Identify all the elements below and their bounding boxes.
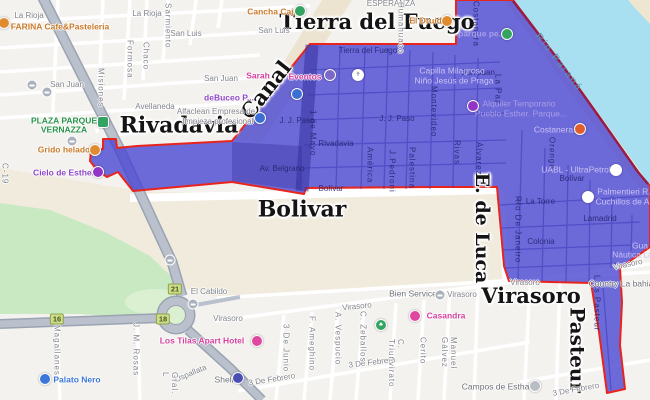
poi-label-palmentieri-1[interactable]: Palmentieri R. — [597, 188, 650, 197]
map-canvas[interactable]: Tierra del Fuego Canal Rivadavia Bolivar… — [0, 0, 650, 400]
street-label-1demayo: 1 de Mayo — [309, 110, 318, 156]
poi-dot-blue-1[interactable] — [291, 88, 303, 100]
street-label-triunvirato: C. Triunvirato — [387, 339, 405, 400]
street-label-colonia: Colonia — [527, 238, 554, 246]
campos-marker[interactable] — [529, 380, 541, 392]
street-label-alvarez: Álvarez — [475, 142, 484, 176]
poi-label-eventos[interactable]: Eventos — [288, 73, 321, 82]
shell-marker[interactable] — [232, 372, 244, 384]
street-label-sarmiento: Sarmiento — [164, 3, 173, 48]
street-label-jpedroni: J.Pedroni — [388, 150, 397, 193]
street-label-rio-de-janeiro: Río De Janeiro — [514, 196, 523, 263]
street-label-gral: Gral. L — [161, 372, 179, 400]
street-label-ameghino: F. Ameghino — [308, 316, 317, 371]
poi-label-shell[interactable]: Shell — [215, 376, 234, 385]
cielo-marker[interactable] — [92, 166, 104, 178]
street-label-montevideo: Montevideo — [430, 86, 439, 137]
building-marker[interactable] — [324, 69, 336, 81]
alquiler-marker[interactable] — [467, 100, 479, 112]
church-marker[interactable]: ✝ — [352, 69, 364, 81]
transit-station-icon-1 — [27, 80, 38, 91]
plaza-vernazza-marker[interactable] — [97, 116, 109, 128]
street-label-rivas: Rivas — [453, 140, 462, 165]
transit-station-icon-2 — [42, 87, 53, 98]
transit-station-icon-3 — [67, 136, 78, 147]
street-label-san-juan-w: San Juan — [50, 81, 84, 89]
poi-label-cielo[interactable]: Cielo de Esther — [33, 169, 95, 178]
street-label-chaco: Chaco — [142, 42, 151, 70]
poi-label-alfaclean-1[interactable]: Alfaclean Empresa de — [177, 108, 255, 116]
route-shield-16: 16 — [50, 314, 64, 325]
street-label-costanera-v: Costanera — [472, 1, 481, 47]
route-shield-21: 21 — [168, 284, 182, 295]
place-label-el-cabildo: El Cabildo — [191, 288, 227, 296]
street-label-tierra-del-fuego: Tierra del Fuego — [339, 47, 397, 55]
parque-marker[interactable] — [501, 28, 513, 40]
palmentieri-marker[interactable] — [582, 191, 594, 203]
street-label-vespucio: A. Vespucio — [334, 312, 343, 365]
cancha-caju-marker[interactable] — [294, 5, 306, 17]
poi-label-uabl[interactable]: UABL - UltraPetrol — [541, 166, 611, 175]
street-label-formosa: Formosa — [126, 40, 135, 79]
poi-label-grido[interactable]: Grido helado — [38, 146, 90, 155]
poi-dot-blue-2[interactable] — [254, 112, 266, 124]
street-label-san-luis-w: San Luis — [170, 30, 201, 38]
poi-label-alquiler-2[interactable]: Pueblo Esther. Parque... — [475, 110, 567, 119]
poi-label-capilla-2[interactable]: Niño Jesús de Praga — [415, 77, 494, 86]
street-label-3dejunio: 3 De Junio — [282, 324, 291, 372]
annotation-pasteur: Pasteur — [567, 307, 588, 393]
street-label-manuel-galvez: Manuel Gálvez — [440, 337, 458, 400]
street-label-rivadavia: Rivadavia — [318, 140, 353, 148]
palato-marker[interactable] — [39, 373, 51, 385]
street-label-san-juan-c: San Juan — [204, 75, 238, 83]
poi-label-country[interactable]: Country La bahia — [589, 280, 650, 289]
poi-label-los-tilas[interactable]: Los Tilas Apart Hotel — [160, 337, 245, 346]
poi-label-casandra[interactable]: Casandra — [427, 312, 466, 321]
poi-label-bien-service[interactable]: Bien Service — [389, 290, 437, 299]
poi-label-capilla-1[interactable]: Capilla Milagroso — [419, 67, 484, 76]
grido-marker[interactable] — [89, 144, 101, 156]
transit-station-icon-6 — [435, 290, 446, 301]
street-label-virasoro-d: Virasoro — [213, 315, 243, 323]
street-label-la-rioja-e: La Rioja — [132, 10, 161, 18]
annotation-e-de-luca: E. de Luca — [471, 173, 491, 284]
poi-label-parque-pe[interactable]: parque pe... — [458, 30, 506, 39]
poi-label-alquiler-1[interactable]: Alquiler Temporario — [482, 100, 555, 109]
poi-label-campos[interactable]: Campos de Esthar — [462, 383, 532, 392]
street-label-lamadrid: Lamadrid — [583, 215, 616, 223]
street-label-zeballos: C. Zeballos — [359, 311, 368, 362]
costanera-marker[interactable] — [574, 123, 586, 135]
annotation-virasoro: Virasoro — [481, 285, 580, 307]
transit-station-icon-5 — [188, 299, 199, 310]
place-label-esperanza: ESPERANZA — [367, 0, 415, 8]
street-label-virasoro-b: Virasoro — [510, 279, 540, 287]
street-label-humahuaca: Humahuaca — [397, 2, 406, 54]
poi-label-palmentieri-2[interactable]: Cuchillos de A... — [596, 198, 650, 207]
annotation-bolivar: Bolivar — [258, 198, 347, 221]
poi-label-plaza-2[interactable]: VERNAZZA — [41, 126, 87, 135]
street-label-magallanes: Magallanes — [53, 325, 62, 376]
street-label-palestina: Palestina — [408, 147, 417, 189]
street-label-bolivar-e: Bolívar — [560, 175, 585, 183]
street-label-avellaneda: Avellaneda — [135, 103, 174, 111]
street-label-virasoro-a: Virasoro — [447, 291, 477, 299]
street-label-av-belgrano: Av. Belgrano — [259, 165, 304, 173]
poi-label-alfaclean-2[interactable]: limpieza profesional — [183, 118, 254, 126]
street-label-jjpaso-e: J. J. Paso — [379, 115, 414, 123]
poi-label-palato-nero[interactable]: Palato Nero — [53, 376, 100, 385]
street-label-l-la-torre: L. La Torre — [517, 198, 555, 206]
poi-label-debuceo[interactable]: deBuceo P... — [204, 94, 254, 103]
tree-marker[interactable]: ♣ — [375, 319, 387, 331]
street-label-jm-rosas: J. M. Rosas — [132, 323, 141, 376]
casandra-marker[interactable] — [409, 310, 421, 322]
poi-label-farina[interactable]: FARINA Cafe&Pasteleria — [11, 23, 109, 32]
street-label-bolivar-w: Bolívar — [319, 185, 344, 193]
route-shield-18: 18 — [156, 314, 170, 325]
poi-label-sarah[interactable]: Sarah — [246, 72, 270, 81]
street-label-cerito: Cerito — [419, 337, 428, 364]
street-label-misiones: Misiones — [97, 68, 106, 108]
street-label-la-rioja-w: La Rioja — [14, 12, 43, 20]
street-label-san-luis-e: San Luis — [258, 27, 289, 35]
el-druida-marker[interactable] — [441, 15, 453, 27]
uabl-marker[interactable] — [610, 164, 622, 176]
los-tilas-marker[interactable] — [251, 335, 263, 347]
street-label-america: América — [366, 147, 375, 183]
transit-station-icon-4 — [165, 255, 176, 266]
poi-label-cancha-caju[interactable]: Cancha Caju — [247, 8, 299, 17]
poi-label-gua-2[interactable]: Náutica La... — [612, 251, 650, 260]
street-label-c19: C-19 — [1, 163, 10, 184]
